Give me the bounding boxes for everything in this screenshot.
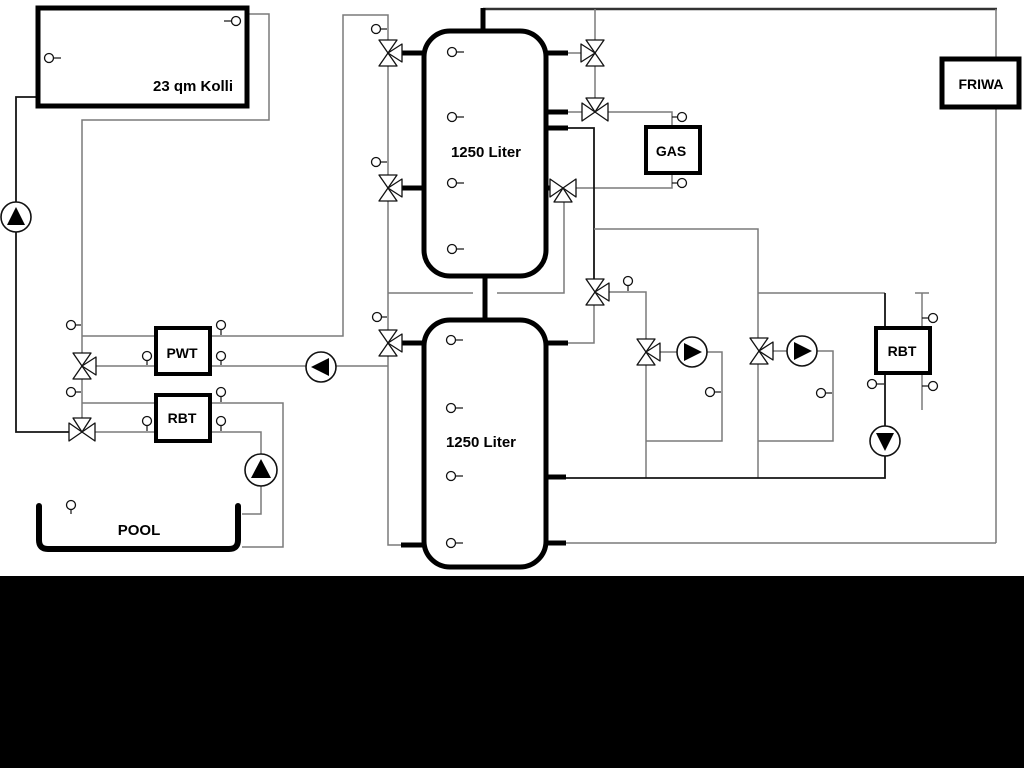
temperature-sensor-icon (143, 352, 152, 361)
temperature-sensor-icon (817, 389, 826, 398)
temperature-sensor-icon (217, 388, 226, 397)
temperature-sensor-icon (447, 404, 456, 413)
pwt-heat-exchanger-label: PWT (166, 345, 198, 361)
temperature-sensor-icon (448, 179, 457, 188)
temperature-sensor-icon (45, 54, 54, 63)
temperature-sensor-icon (372, 25, 381, 34)
temperature-sensor-icon (67, 321, 76, 330)
schematic-page: 23 qm Kolli1250 Liter1250 LiterGASFRIWAP… (0, 0, 1024, 768)
black-band (0, 576, 1024, 768)
temperature-sensor-icon (217, 352, 226, 361)
temperature-sensor-icon (624, 277, 633, 286)
temperature-sensor-icon (447, 336, 456, 345)
temperature-sensor-icon (447, 539, 456, 548)
buffer-tank-1-label: 1250 Liter (451, 144, 521, 161)
pool-label: POOL (118, 522, 161, 539)
temperature-sensor-icon (67, 388, 76, 397)
temperature-sensor-icon (706, 388, 715, 397)
temperature-sensor-icon (678, 179, 687, 188)
temperature-sensor-icon (143, 417, 152, 426)
temperature-sensor-icon (217, 417, 226, 426)
temperature-sensor-icon (67, 501, 76, 510)
temperature-sensor-icon (868, 380, 877, 389)
rbt-right-label: RBT (888, 343, 917, 359)
solar-collector-label: 23 qm Kolli (153, 78, 233, 95)
temperature-sensor-icon (448, 113, 457, 122)
gas-boiler-label: GAS (656, 143, 686, 159)
temperature-sensor-icon (929, 382, 938, 391)
hydraulic-schematic: 23 qm Kolli1250 Liter1250 LiterGASFRIWAP… (0, 0, 1024, 768)
temperature-sensor-icon (447, 472, 456, 481)
friwa-station-label: FRIWA (958, 76, 1003, 92)
rbt-left-label: RBT (168, 410, 197, 426)
temperature-sensor-icon (929, 314, 938, 323)
buffer-tank-2-label: 1250 Liter (446, 434, 516, 451)
temperature-sensor-icon (373, 313, 382, 322)
temperature-sensor-icon (232, 17, 241, 26)
temperature-sensor-icon (448, 48, 457, 57)
temperature-sensor-icon (372, 158, 381, 167)
temperature-sensor-icon (448, 245, 457, 254)
temperature-sensor-icon (678, 113, 687, 122)
temperature-sensor-icon (217, 321, 226, 330)
